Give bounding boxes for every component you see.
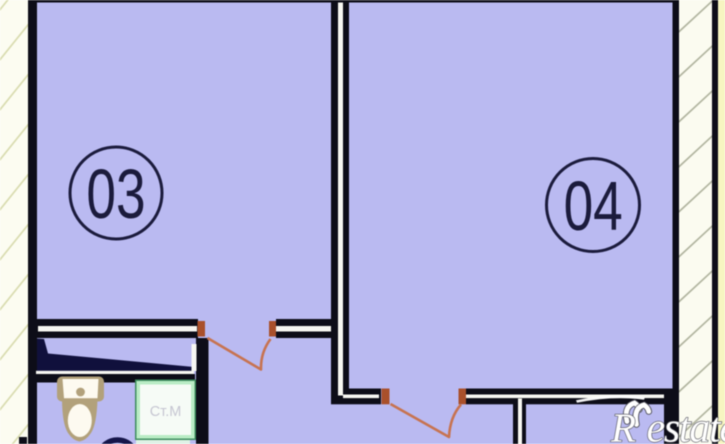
svg-text:04: 04 xyxy=(564,168,623,246)
svg-text:estate: estate xyxy=(647,406,725,444)
svg-text:Ст.М: Ст.М xyxy=(150,404,182,420)
svg-text:R: R xyxy=(610,405,636,444)
svg-text:03: 03 xyxy=(86,156,145,234)
